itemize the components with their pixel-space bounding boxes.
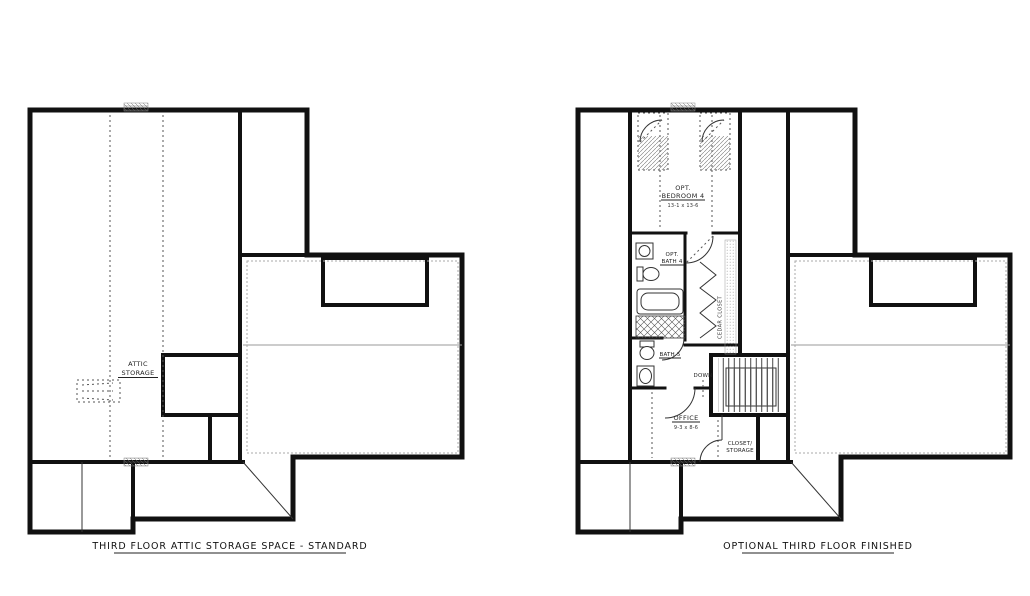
bath5-label: BATH 5 — [659, 352, 680, 358]
bedroom4-dims: 13-1 x 13-6 — [667, 203, 698, 209]
bath4-label-line1: OPT. — [666, 252, 679, 258]
office-label: OFFICE — [674, 414, 699, 422]
attic-storage-label-line1: ATTIC — [128, 360, 148, 368]
right-plan-vent-marker-bottom — [671, 458, 695, 466]
right-plan-caption: OPTIONAL THIRD FLOOR FINISHED — [723, 541, 913, 552]
stair-treads-inner — [727, 369, 775, 405]
left-plan: ATTIC STORAGE THIRD FLOOR ATTIC STORAGE … — [30, 103, 462, 553]
bath5-toilet-symbol — [640, 341, 654, 360]
attic-storage-label-line2: STORAGE — [121, 369, 154, 377]
stairs-down-label: DOWN — [694, 373, 713, 379]
bath4-toilet-symbol — [637, 267, 659, 281]
right-plan-inner-room-b — [758, 415, 788, 462]
left-plan-caption: THIRD FLOOR ATTIC STORAGE SPACE - STANDA… — [91, 541, 367, 552]
left-plan-wing-inset-room — [323, 258, 427, 305]
left-plan-vent-marker-top — [124, 103, 148, 111]
bath4-sink-symbol — [636, 243, 653, 259]
left-plan-outline — [30, 110, 462, 532]
right-plan: CEDAR CLOSET DOWN OPT. BEDROOM 4 13-1 x … — [578, 103, 1010, 553]
floor-plan-sheet: ATTIC STORAGE THIRD FLOOR ATTIC STORAGE … — [0, 0, 1030, 596]
office-dims: 9-3 x 8-6 — [674, 425, 698, 431]
floor-plan-drawing: ATTIC STORAGE THIRD FLOOR ATTIC STORAGE … — [0, 0, 1030, 596]
bedroom4-label-line2: BEDROOM 4 — [662, 192, 705, 200]
cedar-closet-shelf — [725, 240, 736, 354]
bath4-tub-symbol — [637, 289, 683, 314]
right-plan-vent-marker-top — [671, 103, 695, 111]
cedar-closet-label: CEDAR CLOSET — [718, 295, 724, 339]
right-plan-wing-inset-room — [871, 258, 975, 305]
left-plan-vent-marker-bottom — [124, 458, 148, 466]
left-plan-inner-room-b — [210, 415, 240, 462]
bath-tile-floor — [636, 316, 685, 338]
closet-storage-label-line2: STORAGE — [726, 448, 754, 454]
closet-storage-label-line1: CLOSET/ — [728, 441, 753, 447]
bedroom4-label-line1: OPT. — [675, 184, 691, 192]
bath5-sink-symbol — [637, 366, 654, 386]
left-plan-inner-room-a — [163, 355, 240, 415]
bath4-label-line2: BATH 4 — [661, 259, 682, 265]
